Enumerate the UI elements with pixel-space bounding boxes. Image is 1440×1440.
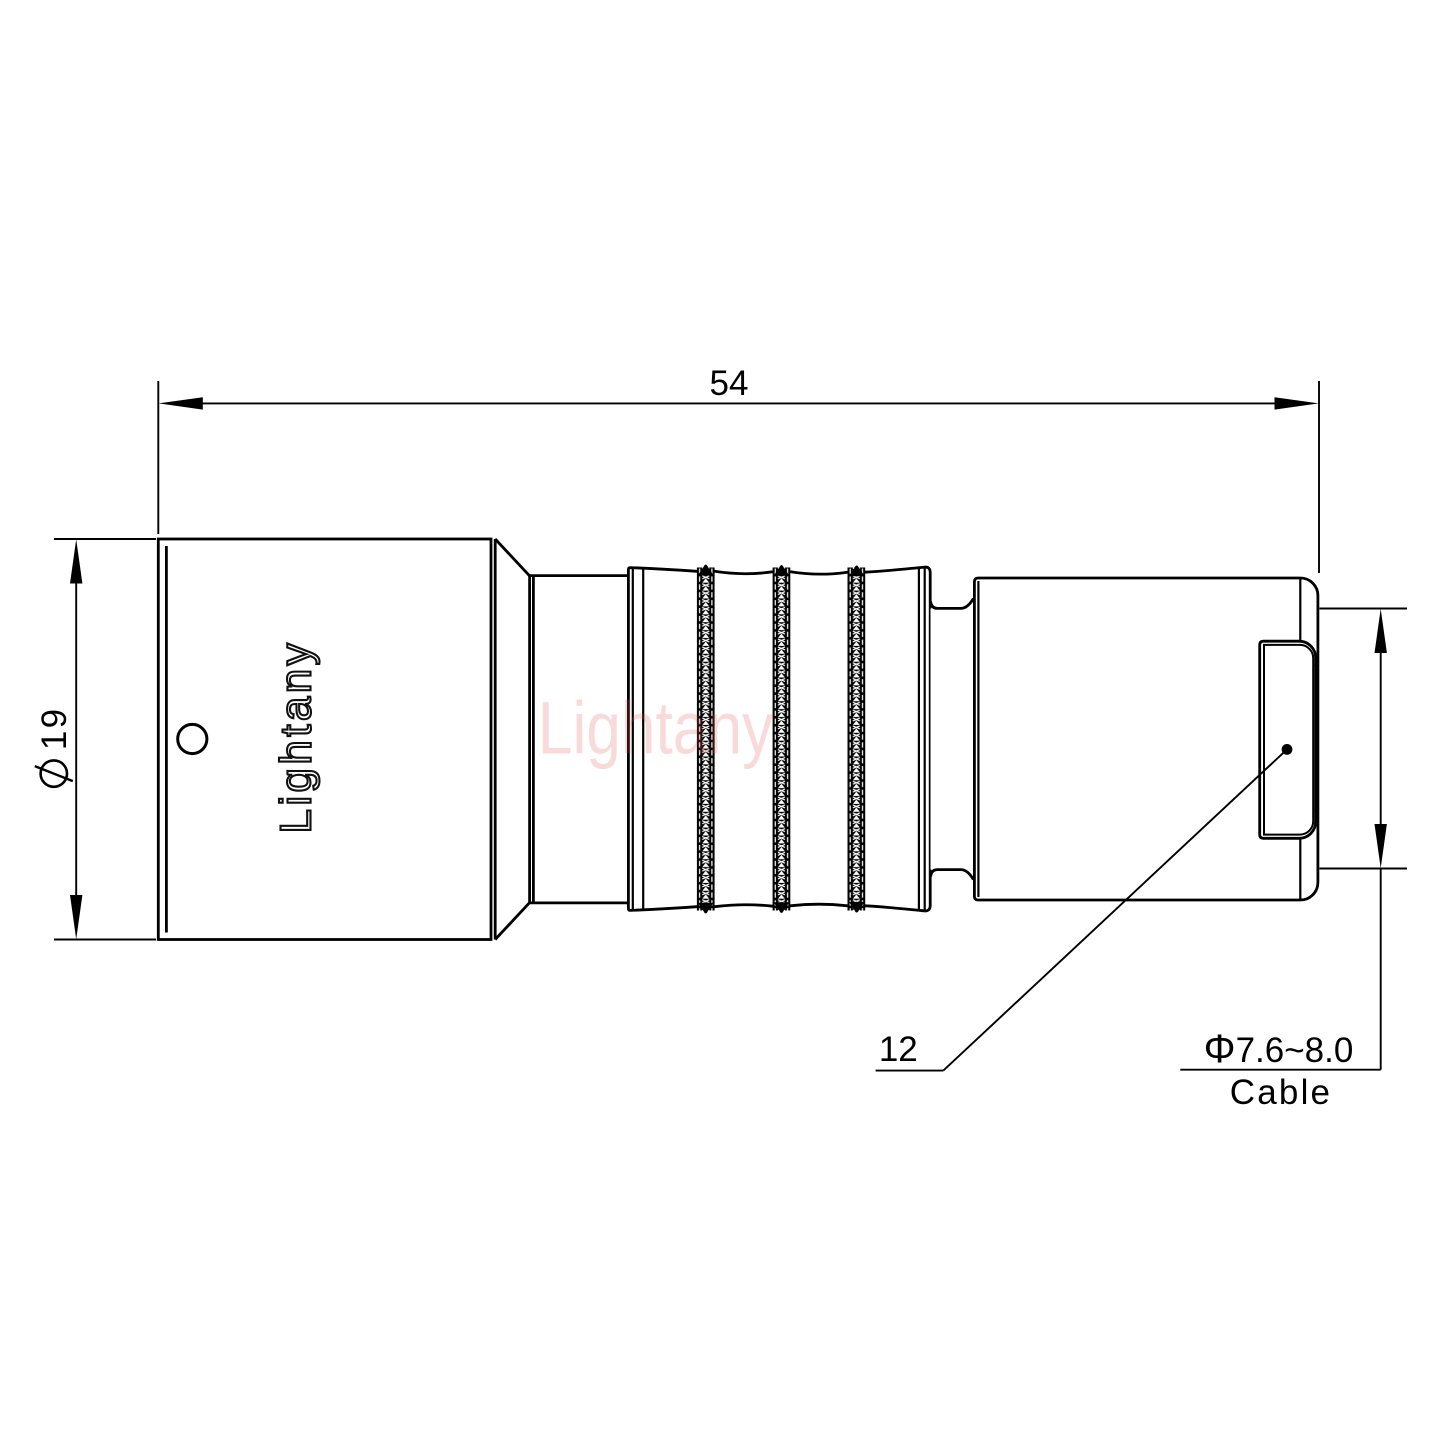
svg-text:19: 19 — [35, 707, 74, 750]
svg-text:Lightany: Lightany — [272, 640, 321, 834]
svg-text:Cable: Cable — [1230, 1073, 1332, 1112]
svg-text:54: 54 — [710, 364, 749, 403]
svg-text:Φ7.6~8.0: Φ7.6~8.0 — [1204, 1027, 1354, 1071]
svg-text:Lightany: Lightany — [538, 686, 774, 769]
svg-text:12: 12 — [879, 1030, 918, 1069]
